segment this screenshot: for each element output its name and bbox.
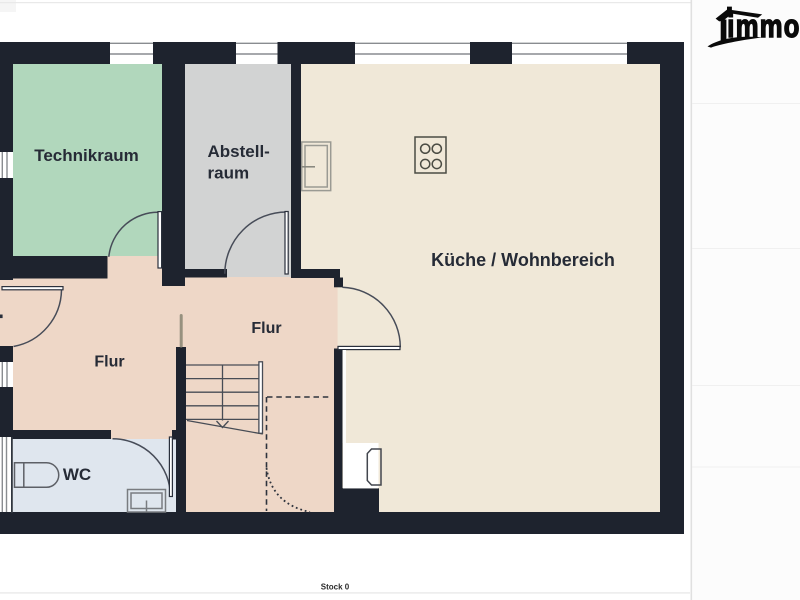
svg-text:raum: raum	[208, 164, 250, 183]
svg-text:Stock 0: Stock 0	[321, 583, 350, 592]
svg-text:Abstell-: Abstell-	[208, 142, 270, 161]
svg-text:immo: immo	[727, 9, 800, 44]
svg-text:Flur: Flur	[94, 354, 124, 371]
svg-text:WC: WC	[63, 465, 91, 484]
svg-text:Küche / Wohnbereich: Küche / Wohnbereich	[431, 250, 615, 270]
svg-text:Flur: Flur	[251, 320, 281, 337]
svg-text:Technikraum: Technikraum	[34, 146, 139, 165]
